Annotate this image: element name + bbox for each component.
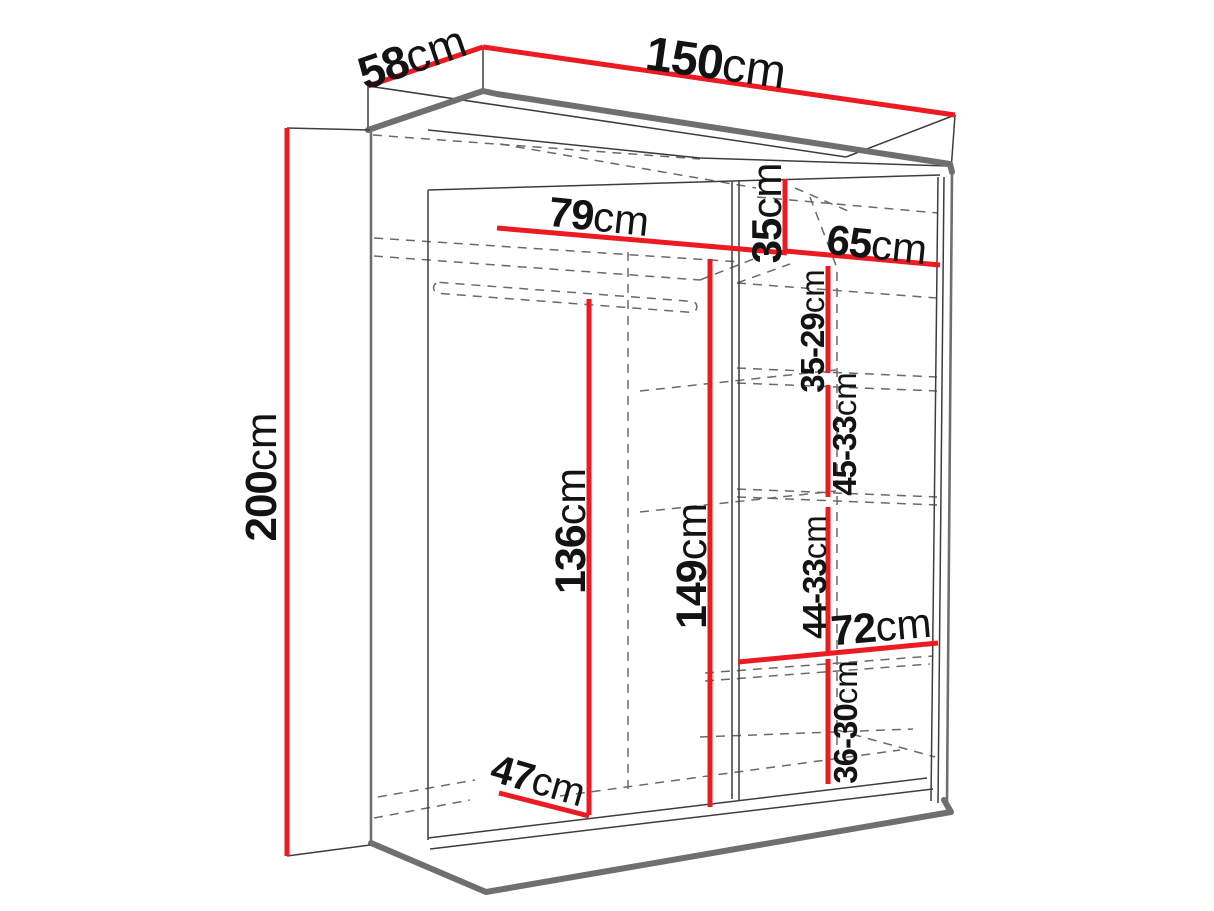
dim-gap2-label: 45-33cm [826,372,863,495]
wardrobe-dimension-diagram: 58cm 150cm 200cm 79cm 35cm 65cm 35-29cm … [0,0,1214,911]
dim-height-label: 200cm [237,412,286,541]
dim-interior-height-label: 149cm [668,503,716,629]
cabinet-structure [368,47,955,849]
dim-rail-height-label: 136cm [547,468,595,594]
cabinet-outline [368,91,952,892]
hanging-rail [433,282,697,313]
diagram-canvas: 58cm 150cm 200cm 79cm 35cm 65cm 35-29cm … [0,0,1214,911]
dim-shelf-width-label: 72cm [829,598,933,654]
dimension-labels: 58cm 150cm 200cm 79cm 35cm 65cm 35-29cm … [237,14,934,815]
dim-top-shelf-label: 35cm [743,163,790,264]
dim-gap4-label: 36-30cm [827,660,864,783]
dim-width-label: 150cm [642,27,789,99]
dim-gap3-label: 44-33cm [796,515,833,638]
dim-right-width-label: 65cm [824,215,929,272]
dimension-ticks [287,128,370,856]
dim-depth-label: 58cm [351,14,472,99]
right-outer-edge [947,172,952,801]
